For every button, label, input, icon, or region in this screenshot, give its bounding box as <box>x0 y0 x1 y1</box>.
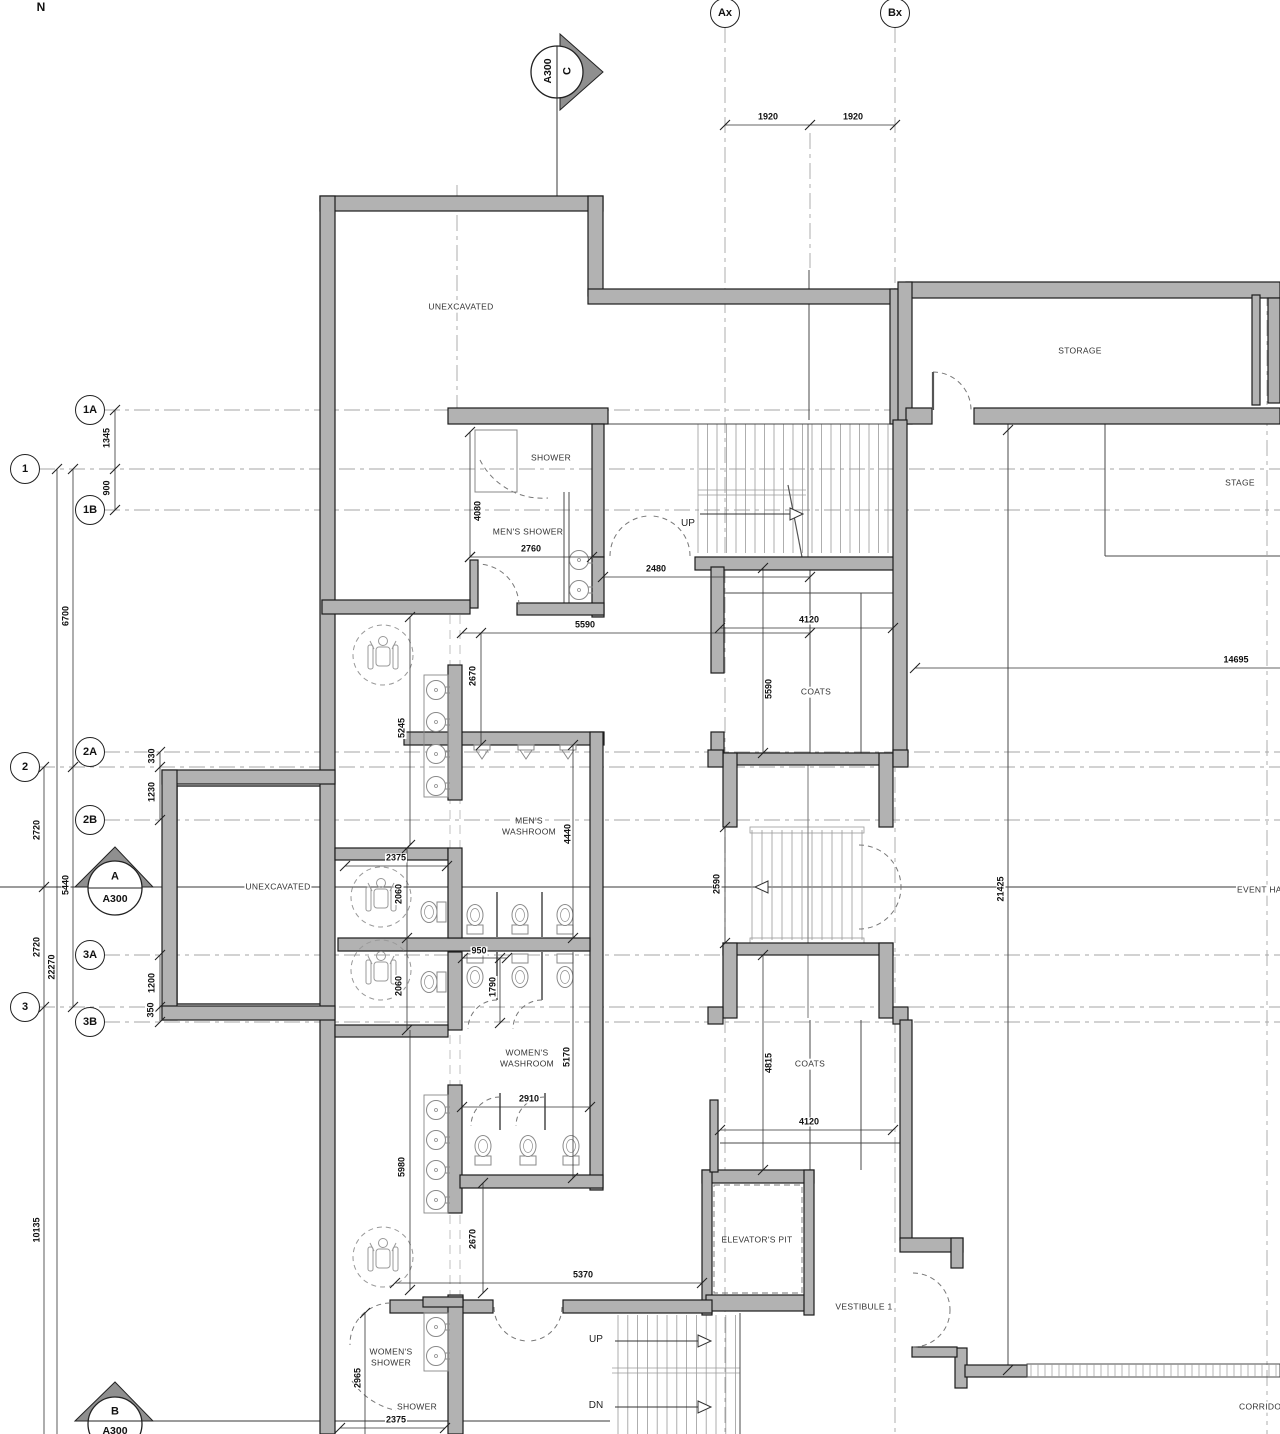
dim-5370: 5370 <box>572 1271 594 1280</box>
room-label-coats-upper: COATS <box>800 687 832 698</box>
dim-2060-upper: 2060 <box>395 883 404 905</box>
stair-up-label-main: UP <box>681 519 695 529</box>
dim-5170: 5170 <box>563 1046 572 1068</box>
dim-1230: 1230 <box>148 781 157 803</box>
room-label-event-hall: EVENT HALL <box>1236 885 1280 896</box>
room-label-womens-washroom: WOMEN'S WASHROOM <box>490 1047 564 1068</box>
dim-2910: 2910 <box>518 1095 540 1104</box>
dim-2670-upper: 2670 <box>469 665 478 687</box>
room-label-storage: STORAGE <box>1057 346 1103 357</box>
room-label-mens-shower: MEN'S SHOWER <box>491 527 565 538</box>
dim-330: 330 <box>148 747 157 764</box>
section-marker-b-sheet: A300 <box>102 1426 127 1434</box>
grid-bubble-3b: 3B <box>75 1007 105 1037</box>
dim-4815: 4815 <box>765 1052 774 1074</box>
grid-bubble-1b: 1B <box>75 495 105 525</box>
stair-dn-label-lower: DN <box>589 1401 603 1411</box>
room-label-mens-washroom: MEN'S WASHROOM <box>492 815 566 836</box>
section-marker-c-sheet: A300 <box>543 58 554 83</box>
dim-1200: 1200 <box>148 972 157 994</box>
dim-350: 350 <box>147 1001 156 1018</box>
dim-950: 950 <box>470 947 487 956</box>
section-marker-a-sheet: A300 <box>102 894 127 905</box>
dim-5245: 5245 <box>398 717 407 739</box>
room-label-coats-lower: COATS <box>794 1059 826 1070</box>
dim-4120-lower: 4120 <box>798 1118 820 1127</box>
section-marker-a-letter: A <box>111 872 119 883</box>
grid-bubble-3: 3 <box>10 992 40 1022</box>
dim-2590: 2590 <box>713 873 722 895</box>
room-label-unexcavated-top: UNEXCAVATED <box>427 302 494 313</box>
floor-plan-svg <box>0 0 1280 1434</box>
dim-2720-upper: 2720 <box>33 819 42 841</box>
dim-6700: 6700 <box>62 605 71 627</box>
grid-bubble-2a: 2A <box>75 737 105 767</box>
room-label-unexcavated-left: UNEXCAVATED <box>244 882 311 893</box>
dim-mid-bx: 1920 <box>842 113 864 122</box>
dim-14695: 14695 <box>1222 656 1249 665</box>
dim-900: 900 <box>103 479 112 496</box>
dim-5980: 5980 <box>398 1156 407 1178</box>
dim-2060-lower: 2060 <box>395 975 404 997</box>
room-label-vestibule: VESTIBULE 1 <box>834 1302 893 1313</box>
dim-5440: 5440 <box>62 874 71 896</box>
floor-plan-canvas: N Ax Bx 1A 1 1B 2A 2 2B 3A 3 3B C A300 A… <box>0 0 1280 1434</box>
dim-1790: 1790 <box>489 976 498 998</box>
plan-drawing <box>0 0 1280 1434</box>
grid-bubble-2b: 2B <box>75 805 105 835</box>
section-marker-c-letter: C <box>563 67 574 75</box>
dim-5590-h: 5590 <box>574 621 596 630</box>
grid-bubble-1a: 1A <box>75 395 105 425</box>
dim-2760: 2760 <box>520 545 542 554</box>
section-marker-b-letter: B <box>111 1407 119 1418</box>
dim-4120-upper: 4120 <box>798 616 820 625</box>
grid-bubble-3a: 3A <box>75 940 105 970</box>
room-label-corridor: CORRIDOR <box>1238 1402 1280 1413</box>
room-label-stage: STAGE <box>1224 478 1256 489</box>
room-label-elevators-pit: ELEVATOR'S PIT <box>720 1235 794 1246</box>
dim-2375-upper: 2375 <box>385 854 407 863</box>
dim-21425: 21425 <box>997 875 1006 902</box>
north-indicator: N <box>37 0 46 14</box>
dim-22270: 22270 <box>48 953 57 980</box>
dim-2480: 2480 <box>645 565 667 574</box>
dim-ax-mid: 1920 <box>757 113 779 122</box>
grid-bubble-2: 2 <box>10 752 40 782</box>
dim-4080: 4080 <box>474 500 483 522</box>
dim-2375-lower: 2375 <box>385 1416 407 1425</box>
dim-1345: 1345 <box>103 427 112 449</box>
dim-2720-lower: 2720 <box>33 936 42 958</box>
room-label-shower-bottom: SHOWER <box>396 1402 438 1413</box>
room-label-shower-top: SHOWER <box>530 453 572 464</box>
dim-5590-v: 5590 <box>765 678 774 700</box>
dim-2965: 2965 <box>354 1367 363 1389</box>
dim-10135: 10135 <box>33 1216 42 1243</box>
grid-bubble-1: 1 <box>10 454 40 484</box>
dim-2670-lower: 2670 <box>469 1228 478 1250</box>
room-label-womens-shower: WOMEN'S SHOWER <box>361 1346 421 1367</box>
stair-up-label-lower: UP <box>589 1335 603 1345</box>
dim-4440: 4440 <box>564 823 573 845</box>
